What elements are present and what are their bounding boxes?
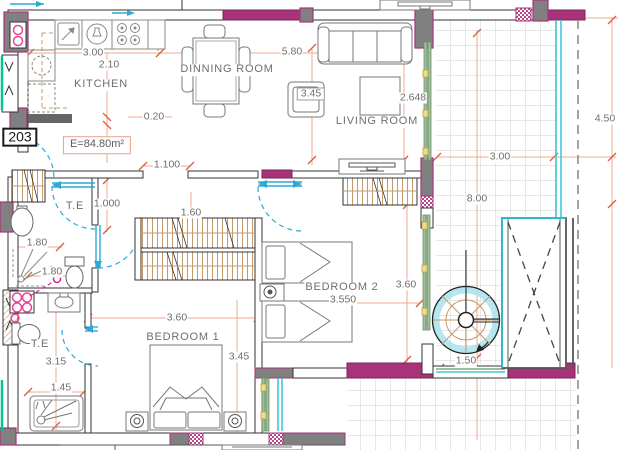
dim-dining-width: 5.80 (281, 46, 303, 57)
floor-plan: 3.00 2.10 KITCHEN 0.20 203 E=84.80m² 5.8… (0, 0, 619, 450)
dim-balcony-width: 3.00 (489, 151, 511, 162)
area-label: E=84.80m² (63, 136, 131, 154)
dim-stair-opening: 1.50 (455, 355, 477, 366)
opening-caps (143, 171, 188, 178)
dim-bedroom1-depth: 3.45 (228, 351, 250, 362)
dim-wardrobe-len: 1.60 (180, 207, 202, 218)
void-shaft (502, 218, 573, 368)
room-label-toilet-upper: T.E (65, 201, 85, 213)
floor-plan-drawing (0, 0, 619, 450)
bedroom1-bed (150, 345, 222, 430)
kitchen-fridge (28, 50, 72, 123)
room-label-bedroom2: BEDROOM 2 (304, 282, 379, 294)
dim-hall-width: 1.000 (93, 198, 121, 209)
room-label-dining: DINNING ROOM (179, 64, 274, 76)
dim-balcony-length: 8.00 (466, 193, 488, 204)
bedroom2-nightstand (260, 284, 284, 301)
dim-balcony-side: 4.50 (594, 113, 616, 124)
dim-bedroom2-width: 3.550 (329, 294, 357, 305)
dim-kitchen-width: 3.00 (82, 47, 104, 58)
dim-wall-offset: 0.20 (143, 111, 165, 122)
dim-armchair-box: 3.45 (297, 87, 325, 100)
unit-number-badge: 203 (2, 128, 37, 147)
dim-bath1-width: 1.80 (26, 237, 48, 248)
bedroom2-bed-1 (262, 242, 352, 283)
dim-bath1-width2: 1.80 (41, 266, 63, 277)
dim-kitchen-counter: 2.10 (98, 59, 120, 70)
coffee-table (360, 77, 400, 115)
dim-bath2-depth: 3.15 (45, 356, 67, 367)
bedroom2-wardrobe (343, 178, 417, 205)
bath2-sink (48, 293, 80, 312)
room-label-living: LIVING ROOM (335, 116, 419, 128)
dim-hall-opening: 1.100 (153, 159, 181, 170)
room-label-bedroom1: BEDROOM 1 (145, 332, 220, 344)
sofa (318, 23, 412, 64)
hall-wardrobes (135, 218, 255, 280)
bath1-toilet (65, 257, 84, 288)
bedroom2-bed-2 (262, 301, 352, 342)
entry-closet (12, 170, 45, 202)
dim-bath2-width: 1.45 (50, 382, 72, 393)
dim-bedroom1-width: 3.60 (166, 312, 188, 323)
room-label-kitchen: KITCHEN (73, 79, 129, 91)
tv-unit (339, 159, 405, 174)
dim-bedroom2-depth: 3.60 (395, 279, 417, 290)
room-label-toilet-lower: T.E (30, 339, 50, 351)
dim-living-depth: 2.648 (399, 92, 427, 103)
